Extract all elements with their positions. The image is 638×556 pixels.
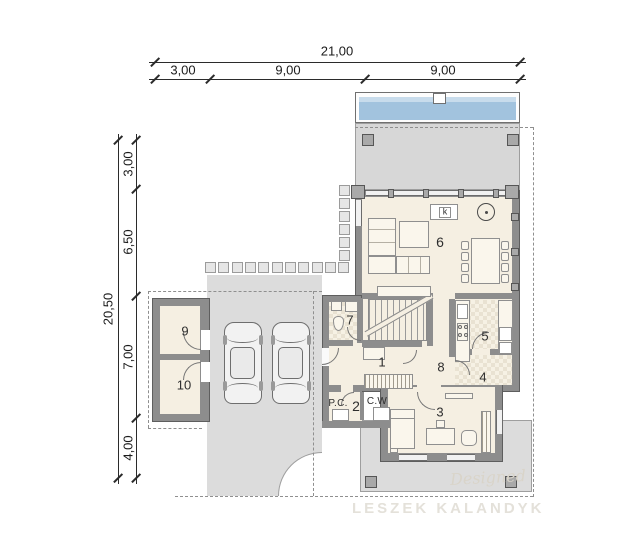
paver (325, 262, 336, 273)
dining-chair (461, 252, 469, 261)
dim-segment: 3,00 (170, 64, 195, 77)
car (272, 322, 310, 404)
paver (232, 262, 243, 273)
oven (499, 327, 512, 341)
garage-roof-outline-bottom (148, 428, 202, 429)
dim-segment: 4,00 (122, 435, 135, 460)
window (355, 200, 362, 226)
hall-north-wall (362, 340, 422, 347)
wc-south-wall (329, 340, 353, 346)
site-boundary-bottom (175, 496, 533, 497)
burner (464, 325, 468, 329)
car-wheel (271, 335, 275, 345)
room-label-4: 4 (479, 371, 486, 384)
burner (464, 333, 468, 337)
paver (338, 262, 349, 273)
paver (339, 198, 350, 209)
desk-chair (436, 420, 445, 428)
boiler-niche-wall (360, 392, 364, 420)
dim-segment: 3,00 (122, 151, 135, 176)
boiler-cw (373, 407, 390, 421)
room-label-10: 10 (177, 379, 191, 392)
roof-outline-top (355, 127, 533, 128)
utility-north-wall (329, 385, 341, 392)
car-rear-window (227, 383, 258, 393)
utility-south-wall (322, 421, 392, 428)
room-label-6: 6 (436, 235, 444, 249)
car-wheel (259, 381, 263, 391)
column (351, 185, 365, 199)
annotation-cw: C.W (367, 397, 387, 407)
dining-chair (501, 274, 509, 283)
kitchen-north-wall (455, 293, 513, 299)
room-label-3: 3 (436, 406, 443, 419)
terrace-column (507, 134, 519, 146)
car-wheel (271, 381, 275, 391)
bed (390, 409, 415, 449)
garage-roof-outline-left (148, 291, 149, 428)
paver (339, 211, 350, 222)
wardrobe (364, 374, 413, 389)
armchair (461, 430, 477, 446)
car-wheel (259, 335, 263, 345)
storage-divider-wall (160, 354, 200, 360)
annotation-pc: P.C. (328, 399, 347, 409)
bedroom-window (399, 454, 427, 461)
paver (312, 262, 323, 273)
sideboard (377, 286, 431, 297)
dim-line (118, 134, 119, 484)
utility-north-wall (353, 385, 362, 392)
mullion (458, 189, 464, 198)
round-table-center (485, 211, 488, 214)
car (224, 322, 262, 404)
paver (258, 262, 269, 273)
car-wheel (223, 335, 227, 345)
dining-chair (461, 274, 469, 283)
wardrobe (481, 411, 491, 453)
car-wheel (307, 381, 311, 391)
room-label-9: 9 (181, 325, 188, 338)
dim-line (149, 79, 526, 80)
boiler-pc (332, 409, 349, 421)
dining-chair (501, 263, 509, 272)
car-roof (230, 347, 255, 379)
mullion (423, 189, 429, 198)
car-rear-window (275, 383, 306, 393)
pool-ladder (433, 93, 446, 104)
paver (245, 262, 256, 273)
wall-pier (511, 283, 519, 291)
burner (458, 333, 462, 337)
dining-chair (501, 252, 509, 261)
storage-door-opening (201, 362, 210, 382)
sofa (368, 218, 396, 256)
paver (339, 237, 350, 248)
burner (458, 325, 462, 329)
dining-chair (501, 241, 509, 250)
washer (345, 301, 358, 312)
upper-terrace (355, 123, 520, 190)
paver (272, 262, 283, 273)
dim-segment: 9,00 (430, 64, 455, 77)
car-wheel (307, 335, 311, 345)
annotation-fireplace: k (443, 208, 448, 217)
coffee-table (399, 221, 429, 248)
storage-floor (160, 306, 200, 414)
car-windshield (227, 333, 258, 343)
carport-roof-outline-top (148, 291, 322, 292)
room-label-7: 7 (346, 314, 353, 327)
paver (285, 262, 296, 273)
watermark-script: Designed (450, 466, 527, 489)
watermark-studio: LESZEK KALANDYK (352, 500, 545, 517)
paver (298, 262, 309, 273)
room-label-1: 1 (378, 356, 385, 369)
room-label-8: 8 (437, 361, 444, 374)
mullion (388, 189, 394, 198)
wall-pier (511, 248, 519, 256)
appliance (499, 342, 512, 354)
terrace-column (362, 134, 374, 146)
dining-chair (461, 241, 469, 250)
dim-segment: 9,00 (275, 64, 300, 77)
bedroom-window (447, 454, 475, 461)
floor-plan-canvas: 1 2 3 4 5 6 7 8 9 10 P.C. C.W k Designed… (0, 0, 638, 556)
dim-line (149, 62, 526, 63)
car-windshield (275, 333, 306, 343)
washbasin (331, 301, 342, 311)
dining-table (471, 238, 500, 284)
dim-segment: 6,50 (122, 229, 135, 254)
terrace-column (365, 476, 377, 488)
room-label-5: 5 (481, 330, 488, 343)
paver (339, 250, 350, 261)
car-wheel (223, 381, 227, 391)
storage-door-opening (201, 330, 210, 350)
bedroom-side-window (496, 410, 503, 434)
cabinet (445, 393, 473, 399)
paver (218, 262, 229, 273)
nightstand (390, 448, 398, 453)
column (505, 185, 519, 199)
dining-chair (461, 263, 469, 272)
wall-pier (511, 213, 519, 221)
paver (339, 185, 350, 196)
site-boundary-right (533, 127, 534, 497)
room-label-2: 2 (352, 399, 360, 413)
sofa (396, 256, 430, 274)
carport-roof-outline-right (313, 291, 314, 496)
sofa-corner (368, 256, 396, 274)
mullion (493, 189, 499, 198)
dim-total-height: 20,50 (102, 293, 115, 326)
round-table (477, 203, 495, 221)
paver (339, 224, 350, 235)
dim-segment: 7,00 (122, 344, 135, 369)
paver (205, 262, 216, 273)
bedroom-door-opening (417, 385, 441, 392)
car-roof (278, 347, 303, 379)
kitchen-sink (457, 304, 468, 319)
front-glazing (366, 190, 505, 196)
dim-total-width: 21,00 (321, 45, 354, 58)
desk (426, 428, 455, 445)
